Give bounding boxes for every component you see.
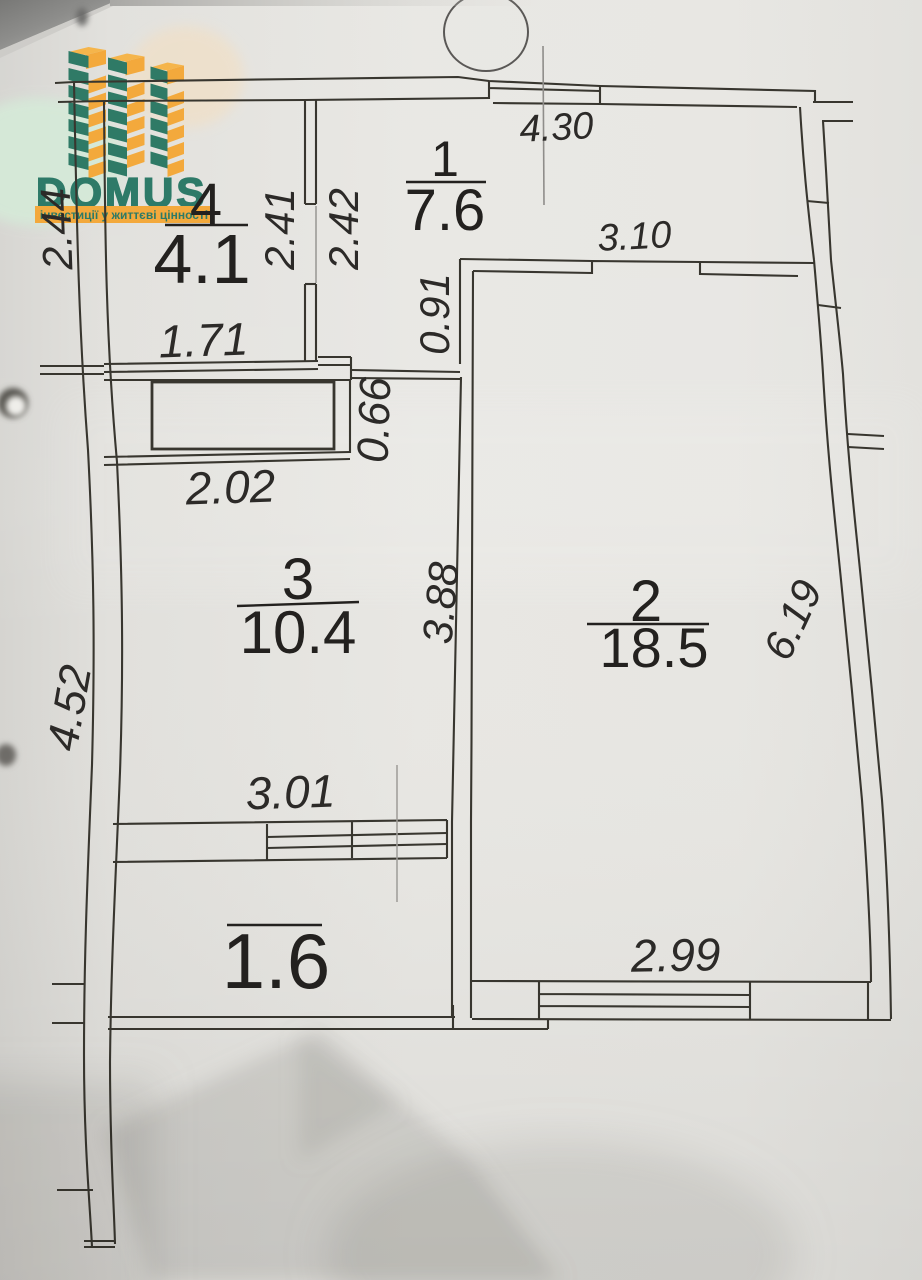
svg-text:2.99: 2.99 bbox=[630, 928, 721, 982]
svg-text:4.30: 4.30 bbox=[518, 105, 594, 151]
svg-text:2.42: 2.42 bbox=[320, 188, 367, 271]
svg-text:2.44: 2.44 bbox=[32, 187, 82, 271]
svg-text:0.91: 0.91 bbox=[411, 273, 458, 355]
svg-text:10.4: 10.4 bbox=[240, 599, 357, 666]
svg-text:0.66: 0.66 bbox=[349, 376, 401, 464]
svg-text:1.6: 1.6 bbox=[222, 917, 330, 1005]
svg-text:4.1: 4.1 bbox=[153, 220, 250, 298]
svg-text:2.02: 2.02 bbox=[184, 459, 276, 514]
svg-text:7.6: 7.6 bbox=[405, 178, 486, 243]
svg-text:2.41: 2.41 bbox=[256, 188, 303, 271]
svg-text:3.88: 3.88 bbox=[414, 560, 468, 646]
svg-text:1.71: 1.71 bbox=[158, 312, 249, 367]
svg-text:3.10: 3.10 bbox=[596, 214, 672, 260]
svg-text:3.01: 3.01 bbox=[245, 764, 336, 819]
svg-text:18.5: 18.5 bbox=[600, 616, 709, 679]
